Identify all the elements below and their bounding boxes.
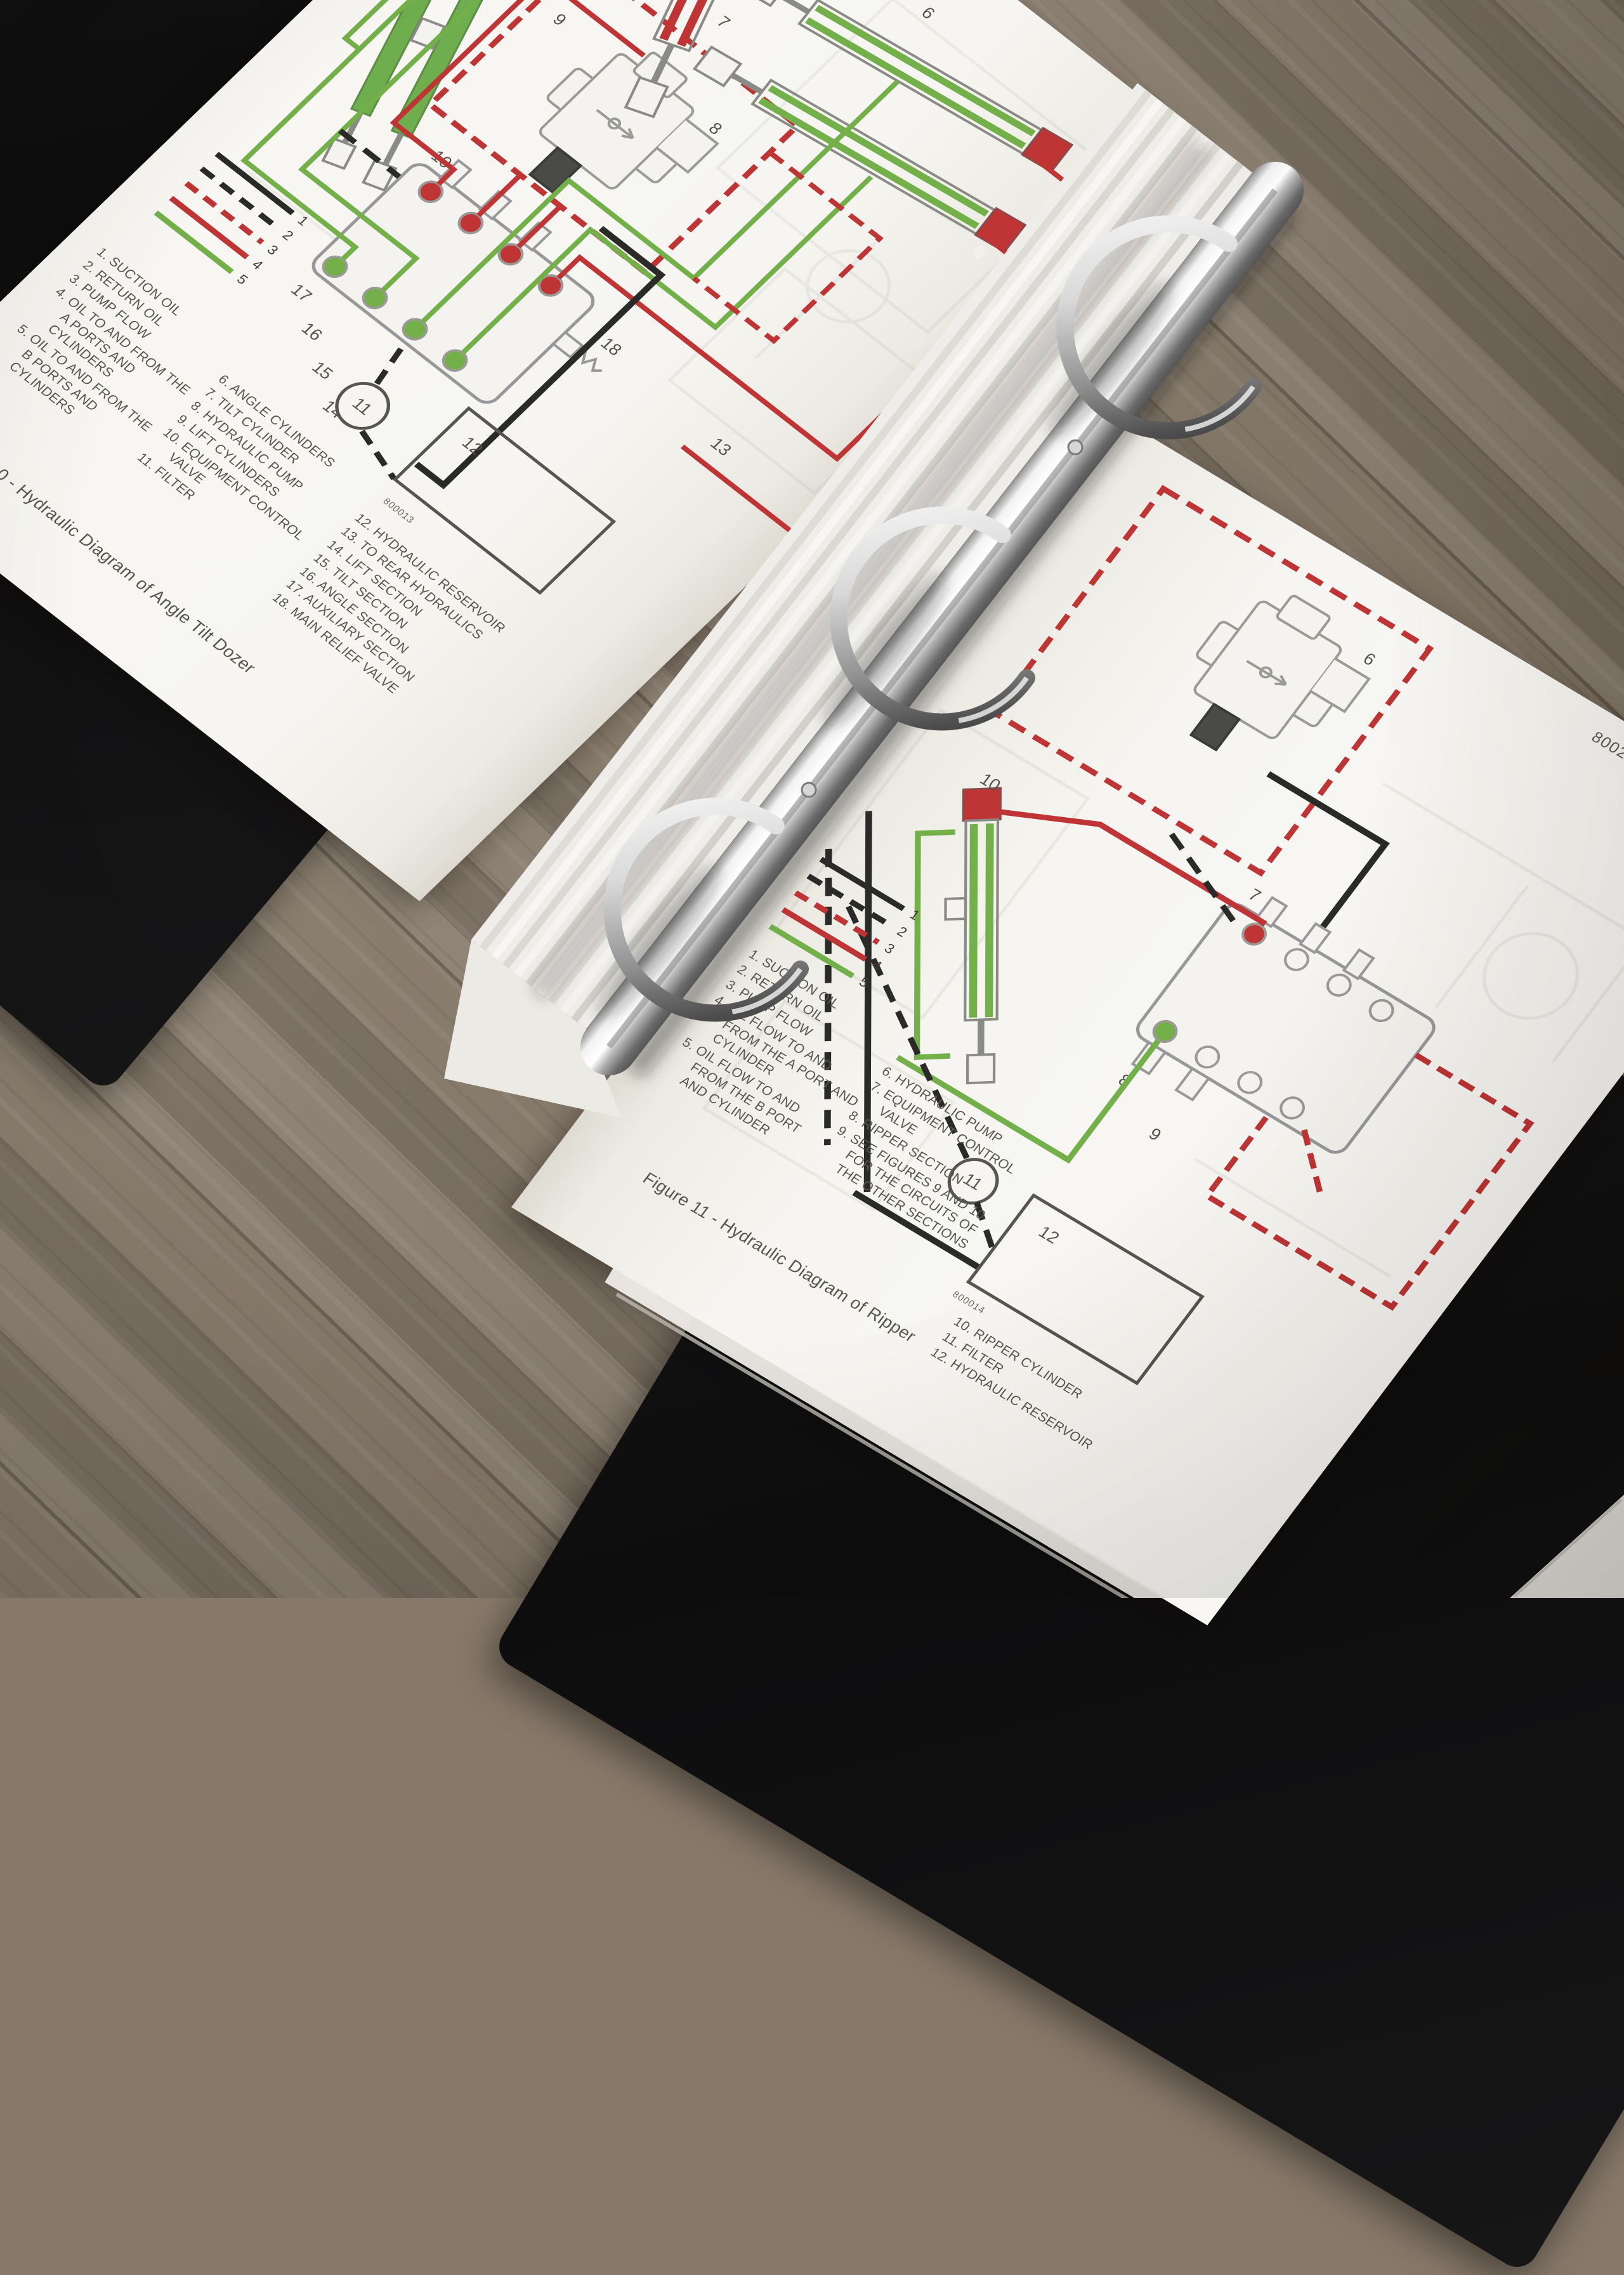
photo-of-open-service-manual-binder: { "colors": { "paper": "#f6f5f1", "print…: [0, 0, 1624, 1598]
lift-cylinders-label: 9: [549, 10, 570, 29]
figure-code: 800014: [950, 1289, 987, 1316]
see-note-label: 9: [1145, 1124, 1165, 1144]
lift-cylinders-drawing: [320, 0, 502, 190]
angle-section-label: 16: [298, 318, 327, 344]
angle-cylinders-label: 6: [917, 3, 939, 23]
tilt-section-label: 15: [308, 358, 337, 383]
aux-section-label: 17: [287, 280, 317, 305]
dashed-to-reservoir: [349, 431, 407, 479]
tilt-cylinder-label: 7: [713, 12, 735, 32]
reservoir-label: 12: [1035, 1222, 1063, 1247]
valve-label: 7: [1245, 884, 1265, 905]
pump-label: 8: [705, 119, 726, 138]
pump-label: 6: [1359, 648, 1380, 669]
figure-code: 800013: [381, 496, 416, 525]
control-valve-drawing: [1116, 882, 1453, 1178]
relief-label: 18: [597, 334, 626, 359]
reservoir-label: 12: [458, 433, 487, 458]
dashed-to-filter: [368, 349, 408, 386]
angle-cylinder-a-drawing: [740, 0, 1072, 172]
to-rear-label: 13: [707, 434, 736, 459]
